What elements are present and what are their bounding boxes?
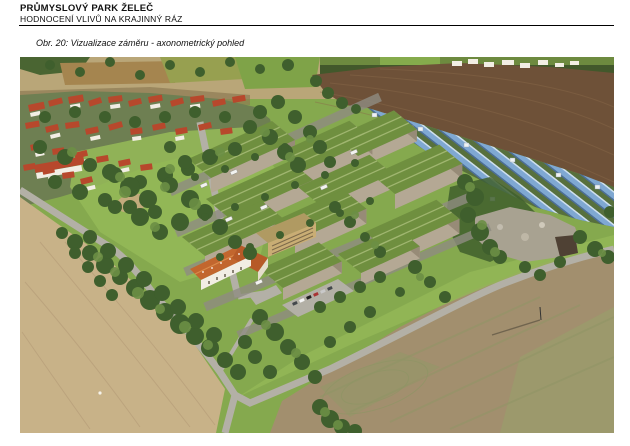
tree xyxy=(374,271,386,283)
tree xyxy=(83,230,97,244)
tree xyxy=(56,227,68,239)
tree xyxy=(94,275,106,287)
horizon-house xyxy=(555,63,564,67)
tree xyxy=(263,365,277,379)
tree xyxy=(554,256,566,268)
tree xyxy=(251,153,259,161)
tree xyxy=(329,201,341,213)
horizon-house xyxy=(520,63,530,68)
tree xyxy=(261,193,269,201)
tree xyxy=(108,200,122,214)
tree xyxy=(246,243,254,251)
figure-caption: Obr. 20: Vizualizace záměru - axonometri… xyxy=(36,38,244,48)
tree xyxy=(230,364,246,380)
tree xyxy=(191,173,199,181)
tree xyxy=(439,291,451,303)
tree xyxy=(282,59,294,71)
tree xyxy=(260,127,270,137)
tree xyxy=(164,141,176,153)
tree xyxy=(110,267,120,277)
tree xyxy=(45,60,55,70)
tree xyxy=(231,203,239,211)
tree xyxy=(154,285,170,301)
tree xyxy=(306,135,314,143)
tree xyxy=(69,247,81,259)
tree xyxy=(395,287,405,297)
tree xyxy=(271,95,285,109)
tree xyxy=(129,116,141,128)
tree xyxy=(48,175,62,189)
tree xyxy=(291,181,299,189)
tree xyxy=(314,301,326,313)
tree xyxy=(82,261,94,273)
tree xyxy=(243,120,257,134)
tree xyxy=(119,186,131,198)
tree xyxy=(371,241,379,249)
tree xyxy=(212,219,228,235)
tree xyxy=(288,110,302,124)
tree xyxy=(276,231,284,239)
tree xyxy=(216,253,224,261)
transformer-box xyxy=(510,158,515,162)
tree xyxy=(424,276,436,288)
horizon-house xyxy=(502,60,514,65)
tree xyxy=(333,420,343,430)
tree xyxy=(67,147,77,157)
tree xyxy=(261,320,271,330)
tree xyxy=(534,269,546,281)
horizon-house xyxy=(538,60,548,65)
tree xyxy=(313,140,327,154)
tree xyxy=(115,172,125,182)
tree xyxy=(255,64,265,74)
tree xyxy=(322,87,334,99)
tree xyxy=(321,171,329,179)
tree xyxy=(139,190,157,208)
tree xyxy=(131,208,149,226)
tree xyxy=(105,57,115,67)
tree xyxy=(408,260,422,274)
tree xyxy=(351,159,359,167)
tree xyxy=(69,106,81,118)
tree xyxy=(351,104,361,114)
tree xyxy=(170,299,186,315)
tree xyxy=(228,142,242,156)
tree xyxy=(201,213,209,221)
horizon-house xyxy=(570,61,579,65)
transformer-box xyxy=(595,185,600,189)
tree xyxy=(465,182,475,192)
tree xyxy=(160,182,170,192)
tree xyxy=(291,348,301,358)
tree xyxy=(179,321,191,333)
tree xyxy=(217,352,233,368)
tree xyxy=(135,70,145,80)
tree xyxy=(33,140,47,154)
tree xyxy=(416,273,424,281)
tree xyxy=(364,306,376,318)
tree xyxy=(320,407,330,417)
tree xyxy=(221,165,229,173)
transformer-box xyxy=(418,127,423,131)
tree xyxy=(366,197,374,205)
horizon-house xyxy=(452,61,462,66)
tree xyxy=(215,147,225,157)
tree xyxy=(178,155,192,169)
tree xyxy=(238,335,252,349)
transformer-box xyxy=(556,173,561,177)
tree xyxy=(155,304,165,314)
tree xyxy=(219,111,231,123)
tree xyxy=(189,198,201,210)
tree xyxy=(519,261,531,273)
tree xyxy=(171,213,189,231)
tree xyxy=(106,289,118,301)
tree xyxy=(310,75,322,87)
transformer-box xyxy=(372,113,377,117)
tree xyxy=(360,232,370,242)
tree xyxy=(598,249,606,257)
tree xyxy=(132,287,144,299)
tree xyxy=(253,105,267,119)
tree xyxy=(324,336,336,348)
tree xyxy=(334,291,346,303)
tree xyxy=(225,57,235,67)
header-divider xyxy=(19,25,614,26)
tree xyxy=(228,235,242,249)
tree xyxy=(344,321,356,333)
horizon-house xyxy=(484,62,494,67)
page-subtitle: HODNOCENÍ VLIVŮ NA KRAJINNÝ RÁZ xyxy=(20,14,183,24)
tree xyxy=(490,247,500,257)
tree xyxy=(99,111,111,123)
tree xyxy=(165,60,175,70)
tree xyxy=(72,184,88,200)
tree xyxy=(285,152,295,162)
tree xyxy=(165,164,175,174)
tree xyxy=(248,350,262,364)
tree xyxy=(159,111,171,123)
tree xyxy=(136,271,152,287)
horizon-house xyxy=(468,59,478,64)
tree xyxy=(308,370,322,384)
aerial-visualization-image xyxy=(20,57,614,433)
tree xyxy=(324,156,336,168)
tree xyxy=(306,219,314,227)
tree xyxy=(460,207,476,223)
page-title: PRŮMYSLOVÝ PARK ŽELEČ xyxy=(20,3,153,14)
tree xyxy=(195,67,205,77)
tree xyxy=(118,257,134,273)
tree xyxy=(39,111,51,123)
tree xyxy=(189,106,201,118)
tree xyxy=(150,222,160,232)
tree xyxy=(75,67,85,77)
tree xyxy=(351,211,359,219)
tree xyxy=(477,220,487,230)
tree xyxy=(336,97,348,109)
tree xyxy=(83,158,97,172)
tree xyxy=(573,230,587,244)
tree xyxy=(354,281,366,293)
tree xyxy=(93,252,103,262)
tree xyxy=(281,143,289,151)
transformer-box xyxy=(464,143,469,147)
aerial-visualization-svg xyxy=(20,57,614,433)
tree xyxy=(203,340,213,350)
